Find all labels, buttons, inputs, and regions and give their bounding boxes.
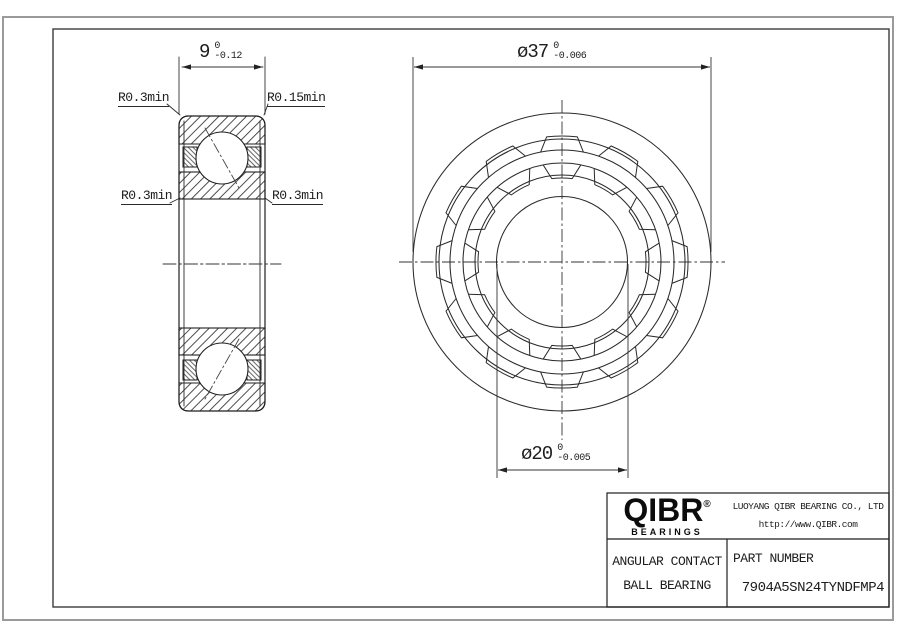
radius-callout-top-left: R0.3min xyxy=(118,91,169,107)
arrowhead xyxy=(701,64,710,69)
tolerance-lower: -0.006 xyxy=(553,52,586,62)
logo-text: QIBR xyxy=(623,492,703,528)
product-type-line2: BALL BEARING xyxy=(623,578,711,593)
od-tolerance: 0 -0.006 xyxy=(553,42,586,62)
brand-logo: QIBR® BEARINGS xyxy=(608,494,726,538)
registered-mark: ® xyxy=(703,499,710,510)
front-view xyxy=(399,57,725,478)
part-number-value: 7904A5SN24TYNDFMP4 xyxy=(727,580,884,596)
arrowhead xyxy=(498,467,507,472)
width-value: 9 xyxy=(199,42,209,62)
arrowhead xyxy=(254,64,263,69)
diameter-symbol: ø xyxy=(517,42,527,62)
logo-subtext: BEARINGS xyxy=(631,527,703,537)
company-website: http://www.QIBR.com xyxy=(759,519,858,531)
part-number-label: PART NUMBER xyxy=(733,551,813,566)
tolerance-lower: -0.005 xyxy=(557,454,590,464)
ball-bottom xyxy=(196,343,248,395)
company-name: LUOYANG QIBR BEARING CO., LTD xyxy=(733,501,884,513)
centerlines xyxy=(399,100,725,440)
ball-top xyxy=(196,132,248,184)
radius-callout-mid-right: R0.3min xyxy=(272,189,323,205)
drawing-sheet: R0.3min R0.15min R0.3min R0.3min 9 0 -0.… xyxy=(0,0,900,636)
width-tolerance: 0 -0.12 xyxy=(214,42,242,62)
bore-tolerance: 0 -0.005 xyxy=(557,444,590,464)
diameter-symbol: ø xyxy=(521,444,531,464)
bore-diameter-dimension: ø 20 0 -0.005 xyxy=(521,444,590,464)
arrowhead xyxy=(182,64,191,69)
width-dimension: 9 0 -0.12 xyxy=(199,42,242,62)
product-type-line1: ANGULAR CONTACT xyxy=(612,554,722,569)
arrowhead xyxy=(618,467,627,472)
bore-value: 20 xyxy=(531,444,552,464)
od-value: 37 xyxy=(527,42,548,62)
tolerance-lower: -0.12 xyxy=(214,52,242,62)
radius-callout-mid-left: R0.3min xyxy=(121,189,172,205)
company-info: LUOYANG QIBR BEARING CO., LTD http://www… xyxy=(727,494,889,538)
outer-diameter-dimension: ø 37 0 -0.006 xyxy=(517,42,586,62)
radius-callout-top-right: R0.15min xyxy=(267,91,325,107)
section-view xyxy=(163,57,281,411)
product-type-cell: ANGULAR CONTACT BALL BEARING xyxy=(608,540,726,606)
arrowhead xyxy=(414,64,423,69)
